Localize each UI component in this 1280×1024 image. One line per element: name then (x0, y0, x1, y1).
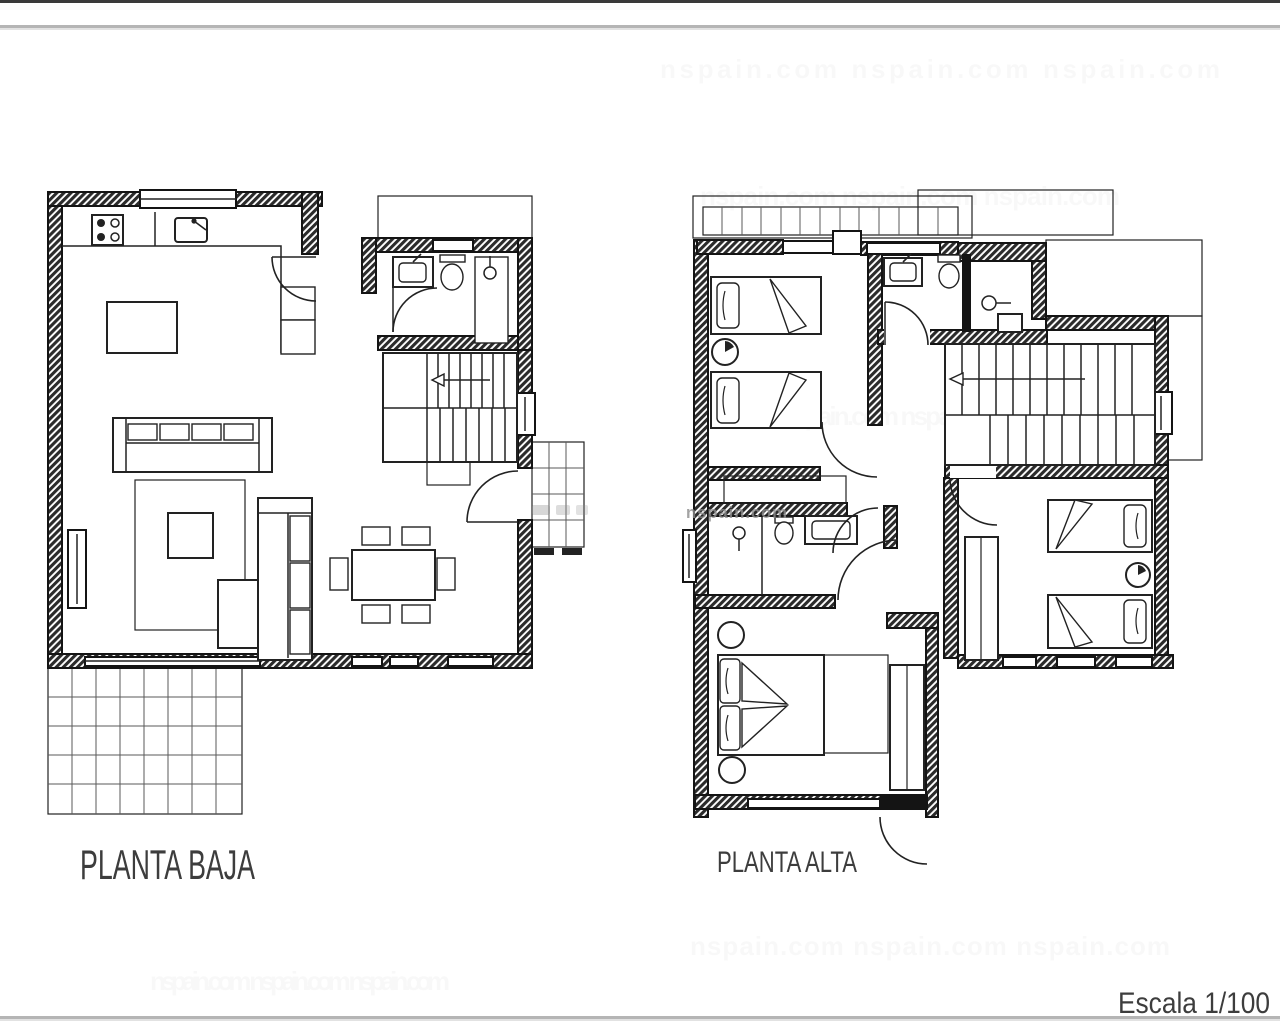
terrace-door-leaf (880, 795, 927, 809)
uf-master-bedroom (718, 622, 924, 790)
shower-icon (475, 256, 508, 343)
uf-bedroom-2 (965, 500, 1152, 660)
stove-icon (92, 215, 123, 245)
gf-staircase (383, 353, 517, 485)
bedside-table (718, 622, 744, 648)
shower-head-icon (982, 296, 1011, 310)
watermark: nspain.com (532, 503, 788, 522)
bedside-table (712, 339, 738, 365)
gf-kitchen (62, 212, 315, 354)
ground-floor-label: PLANTA BAJA (80, 841, 255, 888)
wardrobe (890, 665, 924, 790)
scale-label: Escala 1/100 (1118, 987, 1270, 1020)
dining-chair (362, 605, 390, 623)
gf-bathroom (393, 254, 508, 343)
watermark-fragment (556, 505, 570, 515)
single-bed (1048, 595, 1152, 648)
dining-chair (362, 527, 390, 545)
dining-chair (402, 527, 430, 545)
uf-bathroom (884, 254, 1022, 332)
single-bed (711, 277, 821, 334)
pantry-cabinet (281, 287, 315, 320)
watermark-text: nspain.com (686, 503, 788, 522)
shower-step (998, 314, 1022, 332)
bedside-table (719, 757, 745, 783)
kitchen-island (107, 302, 177, 353)
watermark-fragment (576, 505, 588, 515)
svg-text:nspain.com nspain.com: nspain.com nspain.com nspain.com (690, 931, 1170, 961)
dining-chair (437, 558, 455, 590)
gf-living-room (113, 418, 312, 660)
svg-text:nspain.com nspain.com: nspain.com nspain.com nspain.com (660, 54, 1220, 84)
upper-floor-label: PLANTA ALTA (717, 846, 857, 879)
coffee-table (168, 513, 213, 558)
uf-roof-terrace-outline (1168, 316, 1202, 460)
washbasin-icon (884, 254, 922, 286)
upper-floor-plan: PLANTA ALTA (683, 190, 1202, 879)
double-bed (718, 655, 824, 755)
floor-plan-sheet: nspain.com nspain.com nspain.com nspain.… (0, 0, 1280, 1024)
dining-table (352, 550, 435, 600)
wardrobe (965, 537, 998, 660)
gf-dining-set (330, 527, 455, 623)
gf-entrance-porch-tiles (532, 442, 584, 555)
uf-roof-terrace-outline (1046, 240, 1202, 316)
gf-porch-roof-outline (378, 196, 532, 238)
dining-chair (402, 605, 430, 623)
pantry-cabinet (281, 320, 315, 354)
washbasin-icon (393, 254, 433, 287)
single-bed (1048, 500, 1152, 552)
kitchen-sink-icon (175, 218, 207, 242)
toilet-icon (938, 255, 960, 288)
single-bed (711, 372, 821, 428)
toilet-icon (440, 255, 465, 290)
ground-floor-plan: PLANTA BAJA (48, 190, 584, 888)
gf-terrace-tiles (48, 668, 242, 814)
bedside-table (1126, 563, 1150, 587)
dining-chair (330, 558, 348, 590)
watermark-fragment (532, 505, 550, 515)
sofa (113, 418, 272, 472)
chaise-longue (258, 498, 312, 660)
shower-head-icon (733, 527, 745, 551)
svg-text:nspain.com nspain.com: nspain.com nspain.com nspain.com (150, 966, 450, 996)
floor-plan-drawing: nspain.com nspain.com nspain.com nspain.… (0, 0, 1280, 1024)
uf-staircase (945, 344, 1155, 465)
